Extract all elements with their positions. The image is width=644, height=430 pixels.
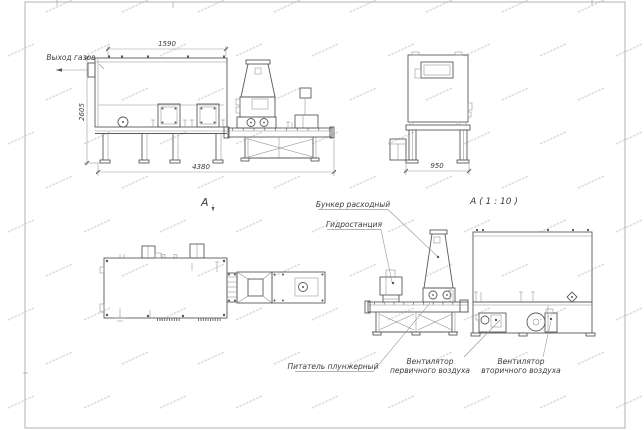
side-legs bbox=[406, 122, 470, 163]
dimension-950: 950 bbox=[404, 162, 471, 175]
feed-hopper-label: Бункер расходный bbox=[316, 200, 390, 209]
dim-950-text: 950 bbox=[430, 162, 444, 170]
body-top-bolts bbox=[108, 56, 225, 58]
front-view: 1590 2605 4380 Выход газов A bbox=[46, 40, 336, 211]
fan-frame bbox=[471, 229, 595, 336]
inspection-hatch bbox=[197, 104, 219, 127]
secondary-fan-label-2: вторичного воздуха bbox=[481, 366, 561, 375]
detail-view-a: A ( 1 : 10 ) bbox=[288, 197, 595, 375]
secondary-air-fan bbox=[527, 309, 557, 332]
drawing-canvas: 1590 2605 4380 Выход газов A bbox=[0, 0, 644, 430]
arrow-head bbox=[211, 207, 214, 211]
gas-outlet-stub bbox=[88, 63, 95, 77]
drawing-sheet: 1590 2605 4380 Выход газов A bbox=[0, 0, 644, 430]
secondary-fan-label-1: Вентилятор bbox=[498, 357, 545, 366]
round-flange bbox=[118, 117, 128, 127]
dim-2605-text: 2605 bbox=[78, 103, 86, 121]
dimension-2605: 2605 bbox=[78, 56, 100, 165]
plunger-feeder-label: Питатель плунжерный bbox=[288, 362, 379, 371]
plan-view bbox=[100, 244, 325, 321]
gas-outlet-label: Выход газов bbox=[46, 53, 95, 62]
inspection-hatch bbox=[158, 104, 180, 127]
detail-conveyor-support bbox=[372, 312, 458, 335]
dimension-1590: 1590 bbox=[106, 40, 228, 56]
feeder-housing-front bbox=[237, 117, 276, 128]
hopper-tower-front bbox=[236, 60, 275, 117]
dim-1590-text: 1590 bbox=[158, 40, 176, 48]
side-hatch bbox=[421, 62, 453, 78]
side-view: 950 bbox=[390, 52, 472, 175]
plan-body bbox=[104, 258, 227, 318]
callout-secondary-fan: Вентилятор вторичного воздуха bbox=[481, 321, 561, 375]
conveyor-support-front bbox=[241, 137, 319, 161]
plan-feeder bbox=[272, 272, 325, 303]
plan-hopper bbox=[237, 272, 272, 303]
feed-hopper bbox=[424, 230, 453, 288]
arrow-head bbox=[56, 68, 62, 72]
fan-pedestal-front bbox=[295, 88, 318, 128]
section-a-mark: A bbox=[200, 196, 215, 211]
primary-fan-label-2: первичного воздуха bbox=[390, 366, 470, 375]
dim-4380-text: 4380 bbox=[192, 163, 210, 171]
section-a-label: A bbox=[200, 196, 209, 209]
detail-conveyor bbox=[365, 290, 468, 313]
plan-connector bbox=[227, 273, 237, 302]
primary-fan-label-1: Вентилятор bbox=[407, 357, 454, 366]
body-legs bbox=[95, 131, 227, 163]
detail-a-title: A ( 1 : 10 ) bbox=[469, 197, 518, 207]
hatch-pins bbox=[151, 120, 225, 127]
conveyor-front bbox=[224, 122, 334, 138]
hydraulic-station bbox=[380, 270, 402, 302]
hydraulic-station-label: Гидростанция bbox=[326, 220, 383, 229]
